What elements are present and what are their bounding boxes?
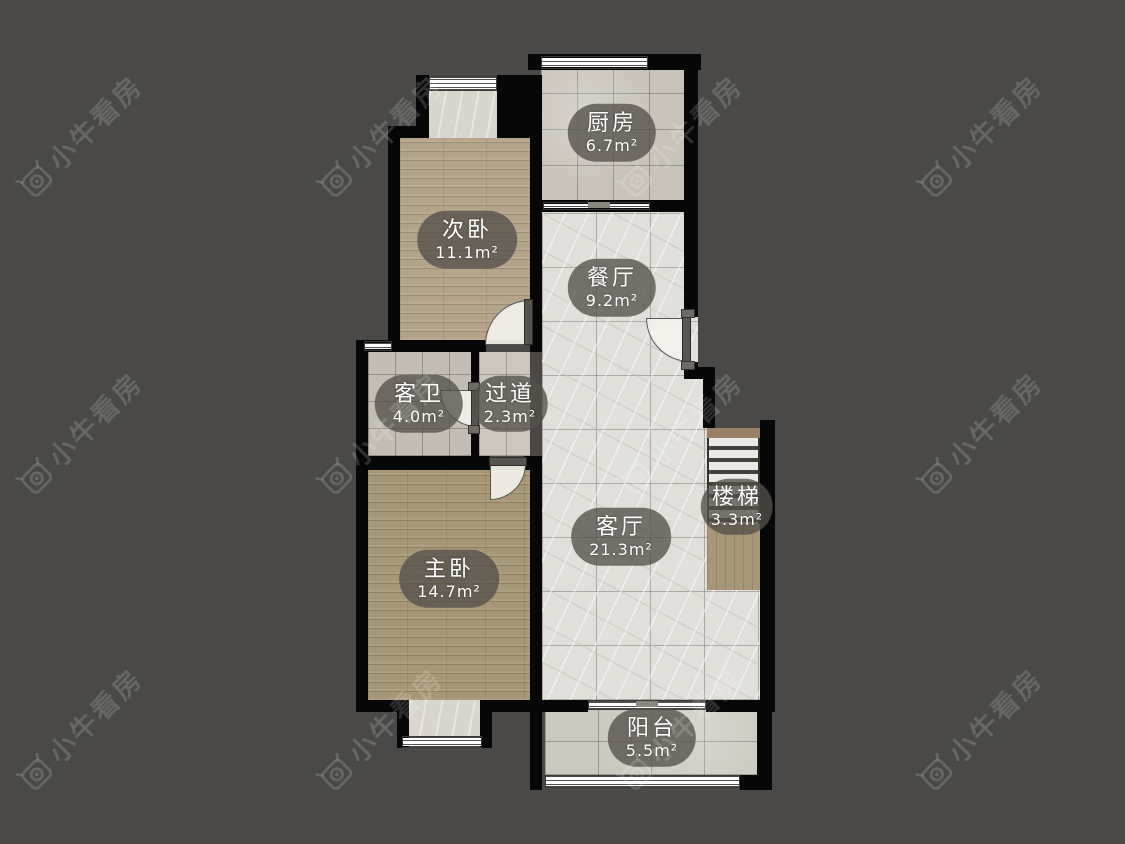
bedroom2-bay-floor (429, 91, 497, 138)
wall-bay2-right (497, 75, 530, 138)
watermark-logo-icon (911, 453, 959, 501)
floorplan-canvas: 厨房 6.7m² 次卧 11.1m² 餐厅 9.2m² 客卫 4.0m² 过道 … (0, 0, 1125, 844)
watermark-text: 小牛看房 (38, 362, 150, 474)
room-area: 11.1m² (435, 243, 499, 262)
wall-living-right (760, 592, 775, 712)
room-label-master: 主卧 14.7m² (399, 550, 499, 608)
watermark-logo-icon (11, 156, 59, 204)
room-label-dining: 餐厅 9.2m² (568, 259, 656, 317)
watermark-text: 小牛看房 (938, 65, 1050, 177)
wall-jog-vertical (703, 367, 715, 428)
wall-balcony-top-l (542, 700, 588, 712)
room-name: 主卧 (417, 557, 481, 582)
room-area: 14.7m² (417, 582, 481, 601)
wall-balcony-left (530, 712, 542, 790)
wall-bedroom2-topstub (388, 126, 429, 138)
room-area: 3.3m² (711, 510, 763, 529)
watermark-text: 小牛看房 (938, 362, 1050, 474)
balcony-window (545, 775, 740, 788)
room-label-bath: 客卫 4.0m² (375, 375, 463, 433)
bedroom2-bay-window (429, 76, 497, 91)
watermark-logo-icon (311, 453, 359, 501)
entry-door-leaf (682, 317, 691, 363)
bedroom2-door-leaf (524, 299, 533, 345)
wall-master-left (356, 458, 368, 712)
room-label-living: 客厅 21.3m² (571, 508, 671, 566)
watermark-logo-icon (311, 156, 359, 204)
room-name: 客厅 (589, 515, 653, 540)
entry-door-jamb (681, 309, 695, 318)
kitchen-window (541, 56, 648, 69)
bathroom-door-jamb (468, 425, 480, 434)
room-area: 5.5m² (626, 741, 678, 760)
master-bay-floor (409, 700, 480, 737)
room-name: 次卧 (435, 218, 499, 243)
watermark-text: 小牛看房 (38, 658, 150, 770)
room-name: 餐厅 (586, 266, 638, 291)
wall-balcony-corner (740, 775, 772, 790)
outline-notch-cover (698, 200, 775, 379)
wall-balcony-top-r (706, 700, 762, 712)
watermark: 小牛看房 (0, 357, 190, 507)
wall-kitchen-right (684, 54, 698, 317)
balcony-door-tick (636, 701, 658, 707)
room-label-stairs: 楼梯 3.3m² (701, 479, 773, 535)
watermark: 小牛看房 (0, 60, 190, 210)
watermark: 小牛看房 (870, 653, 1090, 803)
bathroom-window (364, 341, 392, 351)
room-area: 9.2m² (586, 291, 638, 310)
room-area: 4.0m² (393, 407, 445, 426)
wall-master-right (530, 456, 542, 712)
watermark-logo-icon (911, 749, 959, 797)
room-area: 2.3m² (484, 407, 536, 426)
room-label-bedroom2: 次卧 11.1m² (417, 211, 517, 269)
watermark-logo-icon (311, 749, 359, 797)
room-area: 21.3m² (589, 540, 653, 559)
wall-bedroom2-left (388, 126, 400, 352)
room-area: 6.7m² (586, 136, 638, 155)
room-label-hallway: 过道 2.3m² (472, 376, 548, 432)
kitchen-pass-tick (588, 202, 610, 208)
master-bay-window (402, 736, 482, 748)
wall-bath-left (356, 340, 368, 470)
watermark-text: 小牛看房 (38, 65, 150, 177)
room-label-balcony: 阳台 5.5m² (608, 709, 696, 767)
wall-master-bottom-l (356, 700, 397, 712)
watermark-logo-icon (911, 156, 959, 204)
watermark-logo-icon (11, 453, 59, 501)
master-door-leaf (489, 457, 527, 466)
entry-door-jamb (681, 361, 695, 370)
wall-master-top-left (356, 456, 490, 470)
watermark-text: 小牛看房 (938, 658, 1050, 770)
room-label-kitchen: 厨房 6.7m² (568, 104, 656, 162)
watermark: 小牛看房 (870, 60, 1090, 210)
room-name: 楼梯 (711, 485, 763, 510)
room-name: 阳台 (626, 716, 678, 741)
room-name: 厨房 (586, 111, 638, 136)
watermark: 小牛看房 (870, 357, 1090, 507)
room-name: 客卫 (393, 382, 445, 407)
room-name: 过道 (484, 382, 536, 407)
stair-beam (707, 428, 760, 438)
watermark-logo-icon (11, 749, 59, 797)
watermark: 小牛看房 (0, 653, 190, 803)
